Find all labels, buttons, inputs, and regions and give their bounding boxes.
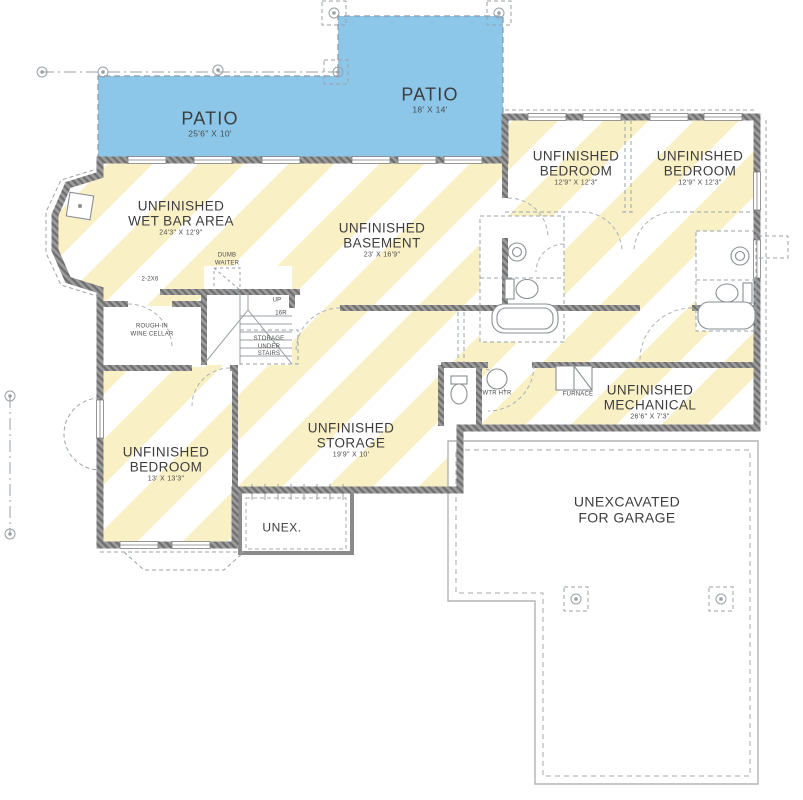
- room-name: UNFINISHED: [533, 148, 620, 163]
- annotation-up: UP: [273, 297, 282, 305]
- annotation-line: STORAGE: [254, 336, 285, 344]
- room-label-patio-left: PATIO 25'6" X 10': [181, 109, 238, 140]
- room-dims: 24'3" X 12'9": [128, 230, 234, 238]
- room-label-bedroom-top-right: UNFINISHED BEDROOM 12'9" X 12'3": [657, 148, 744, 187]
- room-dims: 23' X 16'9": [339, 252, 426, 260]
- room-dims: 13' X 13'3": [123, 476, 210, 484]
- annotation-line: WINE CELLAR: [131, 331, 174, 339]
- room-name: UNFINISHED: [657, 148, 744, 163]
- room-name: UNEX.: [262, 521, 301, 534]
- annotation-joist: 2-2X6: [141, 276, 158, 284]
- water-heater-icon: [487, 369, 507, 389]
- annotation-dumb-waiter: DUMB WAITER: [215, 253, 239, 268]
- room-label-unexcavated: UNEXCAVATED FOR GARAGE: [574, 494, 680, 525]
- annotation-line: WAITER: [215, 260, 239, 268]
- annotation-line: FURNACE: [563, 391, 593, 399]
- room-dims: 26'6" X 7'3": [604, 414, 697, 422]
- bay-post: [66, 192, 93, 219]
- room-name: BASEMENT: [339, 236, 426, 251]
- room-dims: 18' X 14': [401, 106, 458, 116]
- room-label-wet-bar: UNFINISHED WET BAR AREA 24'3" X 12'9": [128, 198, 234, 237]
- wc-fixtures: [451, 376, 467, 404]
- room-dims: 12'9" X 12'3": [657, 180, 744, 188]
- annotation-line: DUMB: [215, 253, 239, 261]
- room-label-storage: UNFINISHED STORAGE 19'9" X 10': [308, 420, 395, 459]
- annotation-water-heater: WTR HTR: [482, 390, 511, 398]
- room-name: BEDROOM: [123, 460, 210, 475]
- room-label-bedroom-lower: UNFINISHED BEDROOM 13' X 13'3": [123, 444, 210, 483]
- annotation-line: UP: [273, 297, 282, 305]
- room-name: UNFINISHED: [308, 420, 395, 435]
- room-label-unex: UNEX.: [262, 521, 301, 534]
- room-name: UNFINISHED: [128, 198, 234, 213]
- furnace-icon: [556, 366, 592, 390]
- annotation-wine-cellar: ROUGH-IN WINE CELLAR: [131, 324, 174, 339]
- annotation-line: UNDER: [254, 343, 285, 351]
- room-name: UNFINISHED: [339, 220, 426, 235]
- room-name: UNFINISHED: [604, 382, 697, 397]
- room-name: MECHANICAL: [604, 398, 697, 413]
- annotation-risers: 16R: [275, 310, 287, 318]
- room-name: WET BAR AREA: [128, 214, 234, 229]
- room-dims: 12'9" X 12'3": [533, 180, 620, 188]
- floor-plan: PATIO 25'6" X 10' PATIO 18' X 14' UNFINI…: [0, 0, 803, 800]
- room-name: FOR GARAGE: [574, 510, 680, 526]
- annotation-under-stairs: STORAGE UNDER STAIRS: [254, 336, 285, 359]
- annotation-furnace: FURNACE: [563, 391, 593, 399]
- annotation-line: ROUGH-IN: [131, 324, 174, 332]
- room-name: PATIO: [401, 85, 458, 105]
- room-name: BEDROOM: [657, 164, 744, 179]
- room-name: STORAGE: [308, 436, 395, 451]
- annotation-line: 2-2X6: [141, 276, 158, 284]
- room-name: UNFINISHED: [123, 444, 210, 459]
- room-name: PATIO: [181, 109, 238, 129]
- room-label-basement: UNFINISHED BASEMENT 23' X 16'9": [339, 220, 426, 259]
- room-name: BEDROOM: [533, 164, 620, 179]
- room-dims: 25'6" X 10': [181, 130, 238, 140]
- room-dims: 19'9" X 10': [308, 452, 395, 460]
- room-label-bedroom-top-left: UNFINISHED BEDROOM 12'9" X 12'3": [533, 148, 620, 187]
- room-label-patio-right: PATIO 18' X 14': [401, 85, 458, 116]
- annotation-line: 16R: [275, 310, 287, 318]
- room-label-mechanical: UNFINISHED MECHANICAL 26'6" X 7'3": [604, 382, 697, 421]
- annotation-line: STAIRS: [254, 351, 285, 359]
- annotation-line: WTR HTR: [482, 390, 511, 398]
- unex-area: [240, 484, 352, 553]
- room-name: UNEXCAVATED: [574, 494, 680, 510]
